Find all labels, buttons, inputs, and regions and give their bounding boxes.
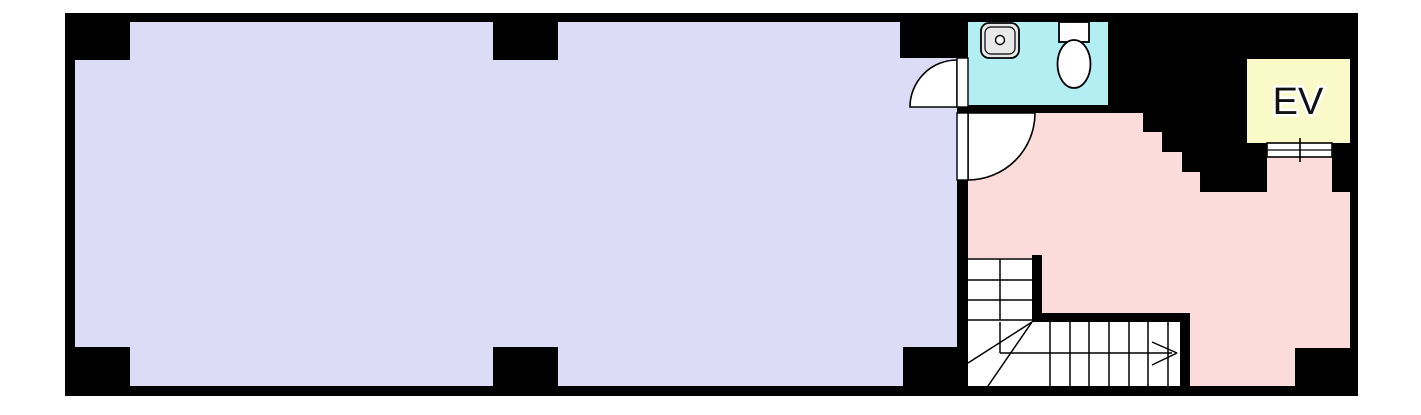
- column-top-left: [65, 13, 130, 60]
- column-bottom-center-right: [903, 347, 968, 396]
- toilet: [1058, 22, 1091, 88]
- wall-right-of-elevator-door: [1332, 143, 1350, 192]
- stair-enclosure-wall-horizontal: [1032, 313, 1190, 322]
- sink: [981, 23, 1019, 58]
- main-room: [75, 22, 957, 386]
- elevator-label: EV: [1273, 81, 1324, 123]
- column-top-middle: [493, 13, 558, 60]
- column-top-right: [900, 13, 965, 58]
- column-bottom-right: [1295, 348, 1358, 396]
- column-bottom-middle: [493, 347, 558, 396]
- staircase-run: [1032, 322, 1180, 386]
- column-bottom-left: [65, 347, 130, 396]
- stair-enclosure-wall-vertical: [1032, 255, 1042, 322]
- floor-plan-drawing: EV: [0, 0, 1421, 415]
- floor-plan: EV: [0, 0, 1421, 415]
- stair-enclosure-wall-right: [1180, 313, 1190, 396]
